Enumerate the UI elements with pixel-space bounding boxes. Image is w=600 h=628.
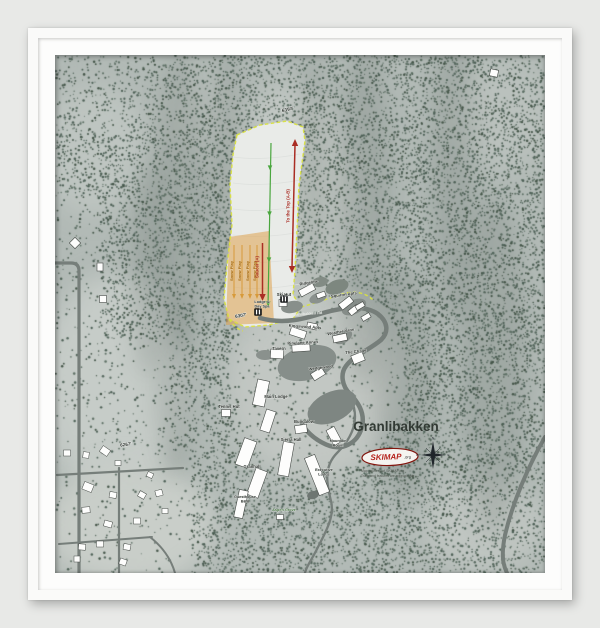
facility-icon [254, 308, 262, 316]
road [305, 399, 355, 573]
house [155, 489, 163, 497]
house [109, 491, 117, 498]
fineprint-line-1: Map courtesy of SKIMAP.org [361, 469, 404, 473]
building [252, 379, 269, 407]
snow-play-label: Snow Play [229, 260, 234, 281]
house [82, 481, 94, 492]
mat-border: Snow PlaySnow PlaySnow PlaySnow PlayTo t… [38, 38, 562, 590]
house [123, 543, 131, 550]
house [146, 471, 154, 478]
building [361, 313, 371, 322]
house [162, 509, 168, 514]
snow-play-label: Snow Play [237, 260, 242, 281]
lift-label: To the Top (A-B) [286, 189, 291, 223]
page: { "frame": { "bg": "#e8e9e7", "frame_col… [0, 0, 600, 628]
map-label: B&B [241, 500, 249, 504]
building [234, 489, 249, 518]
house [83, 452, 90, 459]
house [137, 491, 146, 500]
compass-n: N [432, 437, 435, 441]
building [247, 468, 268, 498]
resort-title: Granlibakken [353, 419, 439, 434]
lift-label: Saucer (A) [255, 255, 260, 277]
building [295, 424, 308, 434]
map-overlay: Snow PlaySnow PlaySnow PlaySnow PlayTo t… [55, 55, 545, 573]
house [74, 556, 80, 562]
map-label: Main Lodge [264, 394, 288, 399]
map-label: Executive [315, 468, 333, 472]
map-label: Mountain [330, 439, 348, 443]
map-label: Lodge [318, 473, 329, 477]
house [64, 450, 71, 456]
compass-s: S [432, 471, 434, 475]
fineprint-line-2: Trails and features are approximate [361, 474, 415, 478]
building [489, 69, 498, 78]
logo-brand: SKIMAP [370, 452, 402, 462]
house [134, 518, 141, 524]
house [115, 461, 121, 466]
road [150, 537, 175, 573]
map-label: Room [333, 444, 344, 448]
framed-print: Snow PlaySnow PlaySnow PlaySnow PlayTo t… [28, 28, 572, 600]
elevation-label: 6267' [120, 441, 132, 448]
building [260, 409, 276, 433]
map-label: Bungalow [294, 419, 315, 424]
building [222, 410, 231, 417]
map-label: Sierra Hall [281, 437, 302, 442]
facility-icon-glyph [259, 310, 260, 315]
snow-play-label: Snow Play [245, 260, 250, 281]
map-label: Guesthouse [234, 495, 256, 499]
map-label: Tavern [272, 346, 286, 351]
map-label: Ski Hut [277, 292, 292, 297]
map-label: Lodge & [254, 300, 269, 304]
compass-e: E [448, 453, 450, 457]
compass-icon: N E S W [416, 437, 450, 475]
map-label: Aspen Grove [272, 508, 296, 512]
building [97, 263, 103, 271]
facility-icon-glyph [282, 297, 283, 302]
building [277, 515, 284, 520]
map-label: Day Spa [255, 305, 271, 309]
road [59, 537, 152, 544]
map-features: Snow PlaySnow PlaySnow PlaySnow PlayTo t… [55, 69, 545, 573]
elevation-label: 6397' [281, 106, 294, 115]
road [503, 437, 545, 573]
house [82, 507, 90, 514]
house [78, 544, 85, 551]
compass-w: W [416, 453, 419, 457]
road [55, 263, 79, 573]
house [103, 520, 112, 528]
ski-map: Snow PlaySnow PlaySnow PlaySnow PlayTo t… [55, 55, 545, 573]
building [69, 237, 80, 248]
building [100, 296, 107, 303]
skimap-logo: SKIMAP .org [362, 448, 419, 467]
map-label: Tennis Hut [218, 404, 240, 409]
facility-icon-glyph [285, 297, 286, 302]
map-label: Granhall [244, 464, 261, 469]
logo-tld: .org [404, 454, 411, 459]
house [97, 541, 104, 547]
map-label: Pinelane Annex [287, 339, 319, 346]
facility-icon-glyph [256, 310, 257, 315]
house [99, 446, 110, 457]
building [278, 441, 295, 476]
